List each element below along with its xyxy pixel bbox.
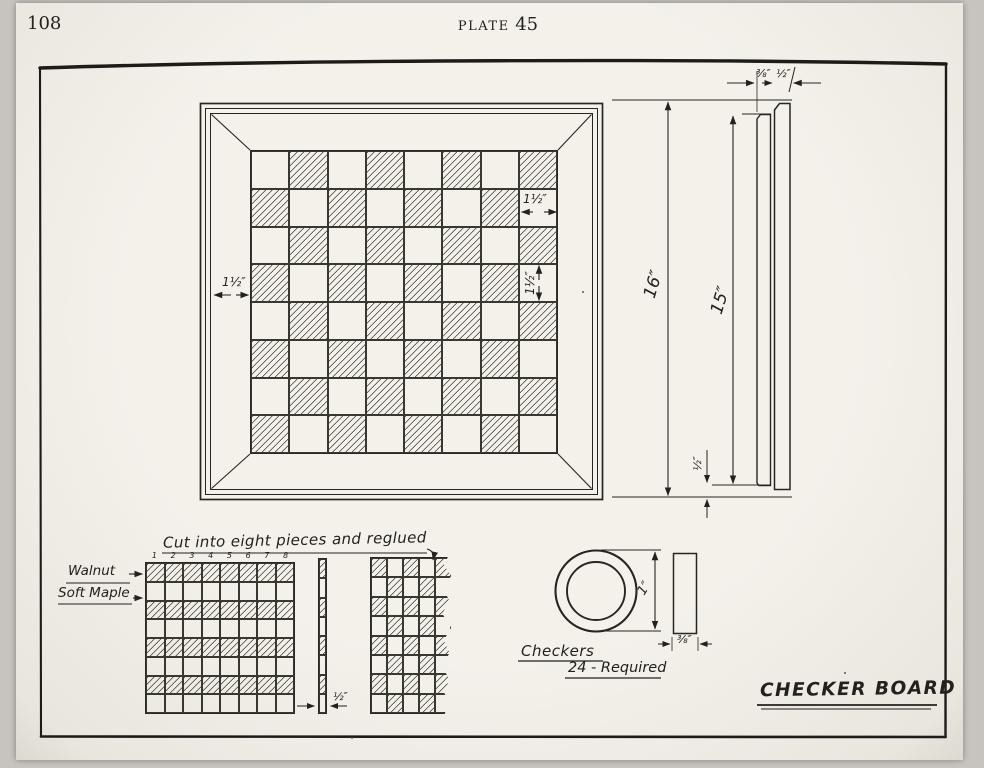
grid-cell	[289, 227, 327, 265]
grid-cell	[371, 674, 387, 693]
grid-cell	[481, 189, 519, 227]
grid-cell	[257, 619, 276, 638]
grid-cell	[419, 616, 435, 635]
scanned-book-page: { "page": { "folio": "108", "plate_word"…	[0, 0, 984, 768]
grid-cell	[202, 582, 221, 601]
grid-cell	[276, 582, 295, 601]
checkerboard-plan-grid	[250, 150, 558, 454]
grid-cell	[519, 378, 557, 416]
page-number: 108	[27, 15, 61, 33]
grid-cell	[276, 638, 295, 657]
frame-width-dim-label: 1½″	[222, 276, 246, 288]
grid-cell	[220, 601, 239, 620]
grid-cell	[403, 655, 419, 674]
piece-numbers: 1 2 3 4 5 6 7 8	[145, 551, 295, 560]
grid-cell	[239, 676, 258, 695]
grid-cell	[387, 558, 403, 577]
grid-cell	[146, 694, 165, 713]
grid-cell	[366, 302, 404, 340]
grid-cell	[276, 619, 295, 638]
grid-cell	[183, 619, 202, 638]
grid-cell	[387, 577, 403, 596]
grid-cell	[202, 694, 221, 713]
grid-cell	[289, 189, 327, 227]
grid-cell	[319, 655, 326, 674]
grid-cell	[289, 378, 327, 416]
grid-cell	[251, 378, 289, 416]
grid-cell	[481, 227, 519, 265]
grid-cell	[419, 694, 435, 713]
grid-cell	[202, 619, 221, 638]
grid-cell	[146, 582, 165, 601]
grid-cell	[404, 378, 442, 416]
grid-cell	[251, 189, 289, 227]
glued-strip-panel-grid	[145, 562, 295, 714]
grid-cell	[183, 582, 202, 601]
grid-cell	[289, 302, 327, 340]
grid-cell	[202, 563, 221, 582]
grid-cell	[251, 227, 289, 265]
grid-cell	[403, 597, 419, 616]
grid-cell	[404, 415, 442, 453]
grid-cell	[239, 657, 258, 676]
grid-cell	[289, 264, 327, 302]
grid-cell	[239, 638, 258, 657]
grid-cell	[251, 264, 289, 302]
frame-thickness-label: ½″	[776, 68, 791, 79]
checkers-label: Checkers	[521, 644, 594, 659]
grid-cell	[289, 151, 327, 189]
grid-cell	[251, 302, 289, 340]
grid-cell	[419, 636, 435, 655]
grid-cell	[239, 563, 258, 582]
grid-cell	[146, 563, 165, 582]
grid-cell	[366, 227, 404, 265]
grid-cell	[371, 655, 387, 674]
grid-cell	[202, 601, 221, 620]
grid-cell	[328, 151, 366, 189]
grid-cell	[251, 340, 289, 378]
grid-cell	[481, 378, 519, 416]
grid-cell	[183, 676, 202, 695]
grid-cell	[403, 694, 419, 713]
grid-cell	[289, 340, 327, 378]
grid-cell	[183, 601, 202, 620]
grid-cell	[387, 694, 403, 713]
grid-cell	[366, 340, 404, 378]
grid-cell	[387, 616, 403, 635]
grid-cell	[257, 563, 276, 582]
grid-cell	[165, 676, 184, 695]
grid-cell	[289, 415, 327, 453]
grid-cell	[371, 616, 387, 635]
grid-cell	[257, 676, 276, 695]
reglued-panel-grid	[370, 557, 452, 714]
grid-cell	[239, 619, 258, 638]
grid-cell	[183, 657, 202, 676]
square-height-dim-label: 1½″	[524, 271, 536, 295]
grid-cell	[239, 601, 258, 620]
grid-cell	[165, 638, 184, 657]
grid-cell	[404, 302, 442, 340]
drawing-title: CHECKER BOARD	[760, 680, 936, 701]
plate-heading: PLATE 45	[438, 16, 558, 34]
grid-cell	[319, 694, 326, 713]
grid-cell	[481, 415, 519, 453]
grid-cell	[328, 264, 366, 302]
grid-cell	[442, 151, 480, 189]
grid-cell	[183, 694, 202, 713]
grid-cell	[328, 302, 366, 340]
grid-cell	[419, 558, 435, 577]
grid-cell	[328, 340, 366, 378]
grid-cell	[371, 636, 387, 655]
grid-cell	[257, 601, 276, 620]
grid-cell	[239, 694, 258, 713]
grid-cell	[276, 657, 295, 676]
grid-cell	[146, 619, 165, 638]
grid-cell	[404, 189, 442, 227]
grid-cell	[220, 676, 239, 695]
grid-cell	[146, 657, 165, 676]
grid-cell	[328, 189, 366, 227]
grid-cell	[251, 151, 289, 189]
grid-cell	[239, 582, 258, 601]
grid-cell	[442, 264, 480, 302]
grid-cell	[183, 563, 202, 582]
grid-cell	[257, 582, 276, 601]
grid-cell	[220, 582, 239, 601]
grid-cell	[403, 558, 419, 577]
grid-cell	[442, 415, 480, 453]
grid-cell	[442, 340, 480, 378]
grid-cell	[319, 559, 326, 578]
grid-cell	[519, 415, 557, 453]
grid-cell	[146, 676, 165, 695]
grid-cell	[366, 151, 404, 189]
grid-cell	[251, 415, 289, 453]
grid-cell	[319, 598, 326, 617]
grid-cell	[202, 638, 221, 657]
grid-cell	[371, 597, 387, 616]
grid-cell	[419, 577, 435, 596]
grid-cell	[328, 227, 366, 265]
grid-cell	[165, 657, 184, 676]
grid-cell	[442, 189, 480, 227]
grid-cell	[404, 227, 442, 265]
grid-cell	[366, 264, 404, 302]
checker-thickness-label: ⅜″	[677, 634, 692, 645]
strip-thickness-label: ½″	[333, 691, 348, 702]
grid-cell	[165, 582, 184, 601]
grid-cell	[442, 302, 480, 340]
grid-cell	[146, 638, 165, 657]
grid-cell	[403, 636, 419, 655]
grid-cell	[202, 657, 221, 676]
grid-cell	[481, 264, 519, 302]
grid-cell	[387, 674, 403, 693]
plate-word: PLATE	[458, 19, 510, 34]
grid-cell	[202, 676, 221, 695]
grid-cell	[328, 378, 366, 416]
grid-cell	[419, 597, 435, 616]
edge-offset-label: ½″	[692, 456, 703, 471]
grid-cell	[371, 694, 387, 713]
grid-cell	[371, 577, 387, 596]
grid-cell	[403, 577, 419, 596]
grid-cell	[404, 264, 442, 302]
grid-cell	[519, 340, 557, 378]
grid-cell	[403, 616, 419, 635]
grid-cell	[519, 302, 557, 340]
grid-cell	[146, 601, 165, 620]
grid-cell	[276, 601, 295, 620]
grid-cell	[371, 558, 387, 577]
grid-cell	[257, 657, 276, 676]
square-width-dim-label: 1½″	[523, 193, 547, 205]
grid-cell	[165, 601, 184, 620]
grid-cell	[220, 619, 239, 638]
grid-cell	[319, 675, 326, 694]
grid-cell	[319, 578, 326, 597]
grid-cell	[481, 340, 519, 378]
grid-cell	[220, 638, 239, 657]
grid-cell	[481, 151, 519, 189]
grid-cell	[366, 189, 404, 227]
cut-strip-edge-grid	[318, 558, 327, 714]
checkers-quantity-label: 24 - Required	[568, 661, 666, 676]
grid-cell	[519, 227, 557, 265]
grid-cell	[366, 378, 404, 416]
grid-cell	[319, 617, 326, 636]
grid-cell	[183, 638, 202, 657]
grid-cell	[387, 636, 403, 655]
grid-cell	[220, 563, 239, 582]
plate-number: 45	[515, 14, 538, 35]
grid-cell	[387, 655, 403, 674]
grid-cell	[319, 636, 326, 655]
grid-cell	[257, 638, 276, 657]
material-maple-label: Soft Maple	[58, 587, 130, 601]
material-walnut-label: Walnut	[68, 565, 115, 579]
grid-cell	[328, 415, 366, 453]
panel-thickness-label: ⅜″	[756, 68, 771, 79]
grid-cell	[387, 597, 403, 616]
grid-cell	[276, 676, 295, 695]
grid-cell	[220, 694, 239, 713]
grid-cell	[257, 694, 276, 713]
grid-cell	[442, 378, 480, 416]
grid-cell	[519, 151, 557, 189]
grid-cell	[403, 674, 419, 693]
grid-cell	[404, 151, 442, 189]
grid-cell	[165, 563, 184, 582]
grid-cell	[442, 227, 480, 265]
grid-cell	[366, 415, 404, 453]
grid-cell	[276, 694, 295, 713]
grid-cell	[276, 563, 295, 582]
grid-cell	[165, 694, 184, 713]
grid-cell	[419, 655, 435, 674]
grid-cell	[220, 657, 239, 676]
grid-cell	[165, 619, 184, 638]
grid-cell	[404, 340, 442, 378]
grid-cell	[481, 302, 519, 340]
grid-cell	[419, 674, 435, 693]
